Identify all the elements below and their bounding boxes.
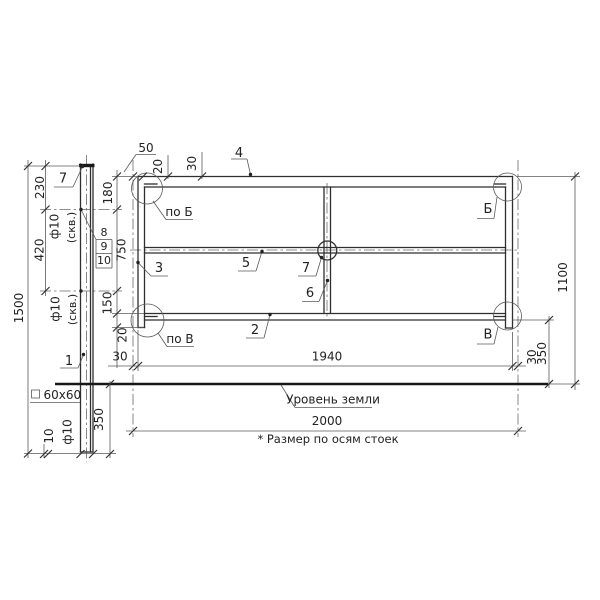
dim-350-buried: 350: [92, 408, 106, 431]
part-label-6: 6: [306, 286, 314, 301]
fence-section-drawing: 7 1 8 9 10 4 3 5 2 7 6 50 по Б по В Б В …: [0, 0, 600, 600]
part-label-1: 1: [65, 354, 73, 369]
dim-2000: 2000: [312, 414, 343, 428]
dim-1500: 1500: [12, 293, 26, 324]
hole-bottom-diameter: ф10: [49, 296, 63, 322]
part-label-10: 10: [97, 254, 111, 267]
dim-350-right: 350: [535, 342, 549, 365]
part-label-8: 8: [101, 226, 108, 239]
dim-1100: 1100: [556, 262, 570, 293]
part-label-7-cap: 7: [59, 172, 67, 187]
hole-bottom-note: (скв.): [66, 294, 79, 325]
part-label-7-joint: 7: [302, 261, 310, 276]
dim-230: 230: [33, 176, 47, 199]
dim-30-top: 30: [185, 156, 199, 171]
section-label-v: В: [484, 328, 493, 343]
hole-top-note: (скв.): [65, 212, 78, 243]
hole-top-diameter: ф10: [48, 214, 62, 240]
dim-150: 150: [101, 292, 115, 315]
drawing-page: 7 1 8 9 10 4 3 5 2 7 6 50 по Б по В Б В …: [0, 0, 600, 600]
post-profile-label: 60x60: [44, 388, 82, 402]
part-label-9: 9: [101, 240, 108, 253]
section-label-b: Б: [484, 202, 493, 217]
axes-note: * Размер по осям стоек: [257, 432, 398, 446]
part-label-2: 2: [251, 323, 259, 338]
ground-level-note: Уровень земли: [286, 393, 380, 407]
dim-750: 750: [115, 239, 129, 262]
dim-30-bottom-left: 30: [112, 350, 127, 364]
dim-10-drain: 10: [42, 428, 56, 443]
part-label-5: 5: [242, 256, 250, 271]
view-label-po-b: по Б: [165, 205, 192, 219]
dim-20-left: 20: [116, 327, 130, 342]
dim-20-top: 20: [151, 159, 165, 174]
view-label-po-v: по В: [166, 332, 193, 346]
part-label-4: 4: [235, 146, 243, 161]
dim-420: 420: [33, 239, 47, 262]
part-label-3: 3: [155, 261, 163, 276]
dim-180: 180: [101, 182, 115, 205]
dim-50: 50: [138, 141, 153, 155]
drain-hole-diameter: ф10: [61, 419, 75, 445]
dim-1940: 1940: [312, 350, 343, 364]
